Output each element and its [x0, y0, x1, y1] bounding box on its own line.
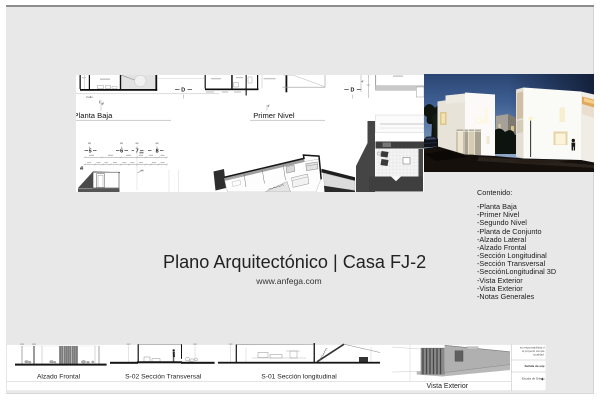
- svg-text:Alzado Frontal: Alzado Frontal: [37, 374, 81, 381]
- svg-text:Planta Baja: Planta Baja: [76, 111, 113, 120]
- svg-text:D: D: [351, 88, 355, 94]
- svg-text:Vista Exterior: Vista Exterior: [427, 383, 469, 390]
- svg-text:Calle: Calle: [86, 95, 93, 99]
- svg-text:Señala de exp: Señala de exp: [524, 364, 544, 368]
- svg-text:D: D: [181, 88, 185, 94]
- svg-text:Primer Nivel: Primer Nivel: [253, 111, 295, 120]
- svg-text:S-01 Sección longitudinal: S-01 Sección longitudinal: [261, 374, 337, 381]
- svg-text:el proyecto comple: el proyecto comple: [522, 349, 545, 353]
- svg-text:localidad.: localidad.: [533, 353, 545, 357]
- svg-text:S-02 Sección Transversal: S-02 Sección Transversal: [125, 374, 202, 381]
- svg-text:es responsabilidad d: es responsabilidad d: [520, 346, 545, 350]
- svg-text:Escala de Dibujo: Escala de Dibujo: [522, 377, 545, 381]
